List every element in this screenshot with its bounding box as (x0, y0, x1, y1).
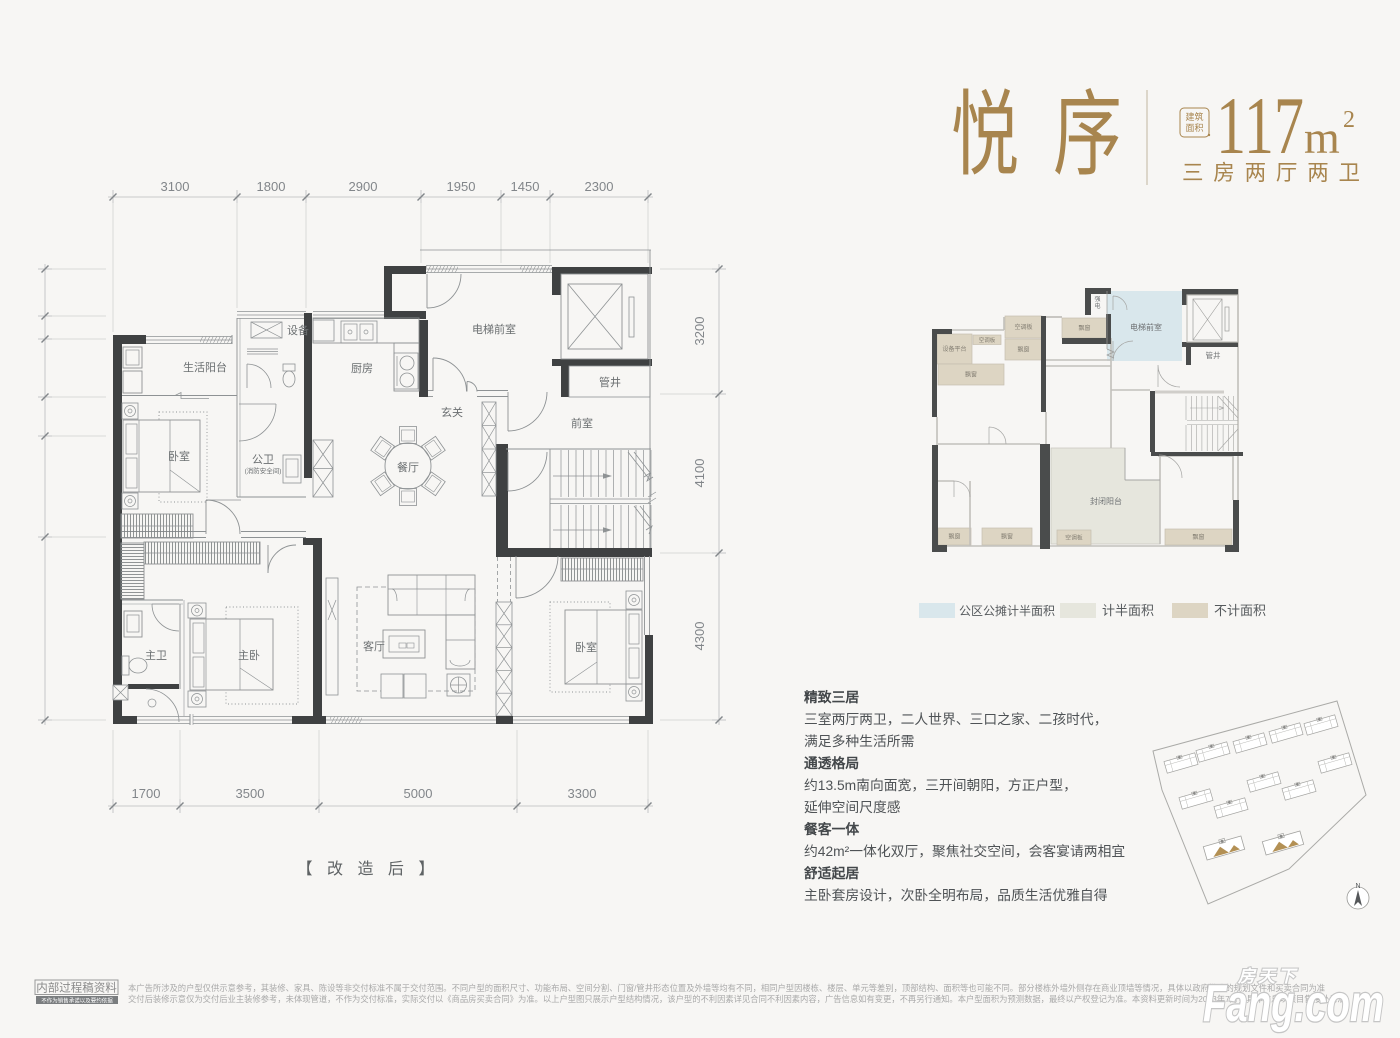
svg-text:4100: 4100 (692, 459, 707, 488)
svg-text:悦: 悦 (951, 85, 1019, 188)
svg-text:3300: 3300 (568, 786, 597, 801)
svg-text:约42m²一体化双厅，聚焦社交空间，会客宴请两相宜: 约42m²一体化双厅，聚焦社交空间，会客宴请两相宜 (804, 843, 1125, 859)
svg-text:飘窗: 飘窗 (1192, 533, 1204, 541)
svg-text:主卫: 主卫 (145, 649, 167, 662)
svg-text:玄关: 玄关 (441, 405, 463, 419)
svg-text:飘窗: 飘窗 (1078, 324, 1090, 332)
svg-text:2900: 2900 (349, 179, 378, 194)
svg-text:客厅: 客厅 (363, 639, 385, 653)
svg-text:封闭阳台: 封闭阳台 (1090, 496, 1122, 506)
svg-text:约13.5m南向面宽，三开间朝阳，方正户型，: 约13.5m南向面宽，三开间朝阳，方正户型， (804, 777, 1077, 793)
svg-text:三房两厅两卫: 三房两厅两卫 (1182, 161, 1370, 185)
svg-text:1950: 1950 (447, 179, 476, 194)
svg-text:精致三居: 精致三居 (804, 689, 859, 705)
svg-text:m: m (1304, 112, 1340, 163)
svg-text:生活阳台: 生活阳台 (183, 360, 227, 374)
svg-text:公卫: 公卫 (252, 454, 274, 466)
svg-text:设备: 设备 (287, 323, 309, 337)
svg-text:【 改 造 后 】: 【 改 造 后 】 (297, 860, 440, 878)
svg-text:空调板: 空调板 (1065, 534, 1083, 542)
svg-text:延伸空间尺度感: 延伸空间尺度感 (804, 799, 901, 815)
svg-text:前室: 前室 (571, 416, 593, 430)
svg-text:3500: 3500 (236, 786, 265, 801)
svg-text:不计面积: 不计面积 (1214, 603, 1266, 618)
svg-text:1800: 1800 (257, 179, 286, 194)
svg-text:餐客一体: 餐客一体 (803, 821, 859, 837)
svg-text:(消防安全间): (消防安全间) (245, 466, 282, 475)
svg-text:通透格局: 通透格局 (804, 755, 859, 771)
svg-text:主卧套房设计，次卧全明布局，品质生活优雅自得: 主卧套房设计，次卧全明布局，品质生活优雅自得 (804, 887, 1108, 903)
svg-text:卧室: 卧室 (168, 449, 190, 463)
svg-text:三室两厅两卫，二人世界、三口之家、二孩时代，: 三室两厅两卫，二人世界、三口之家、二孩时代， (804, 711, 1108, 727)
svg-text:3200: 3200 (692, 317, 707, 346)
svg-text:飘窗: 飘窗 (948, 533, 960, 541)
svg-text:面积: 面积 (1185, 122, 1203, 133)
svg-text:1700: 1700 (132, 786, 161, 801)
svg-text:电梯前室: 电梯前室 (472, 322, 516, 336)
svg-text:公区公摊计半面积: 公区公摊计半面积 (959, 604, 1055, 618)
svg-text:N: N (1355, 883, 1360, 890)
svg-text:1450: 1450 (511, 179, 540, 194)
svg-text:本广告所涉及的户型仅供示意参考，其装修、家具、陈设等非交付标: 本广告所涉及的户型仅供示意参考，其装修、家具、陈设等非交付标准不属于交付范围。不… (128, 983, 1325, 993)
svg-text:2: 2 (1343, 107, 1355, 133)
svg-text:电梯前室: 电梯前室 (1130, 322, 1162, 332)
svg-text:餐厅: 餐厅 (397, 460, 419, 474)
svg-text:空调板: 空调板 (979, 336, 996, 344)
svg-text:设备平台: 设备平台 (942, 345, 966, 353)
svg-text:强: 强 (1094, 296, 1100, 303)
svg-text:管井: 管井 (599, 375, 621, 389)
svg-text:飘窗: 飘窗 (1017, 346, 1029, 354)
svg-text:交付后装修示意仅为交付后业主装修参考，未体现管道，不作为交付: 交付后装修示意仅为交付后业主装修参考，未体现管道，不作为交付标准，实际交付以《商… (128, 994, 1346, 1004)
svg-text:空调板: 空调板 (1014, 323, 1032, 331)
svg-text:电: 电 (1094, 302, 1100, 310)
svg-text:飘窗: 飘窗 (965, 371, 977, 379)
svg-text:计半面积: 计半面积 (1102, 603, 1154, 618)
svg-text:2300: 2300 (585, 179, 614, 194)
svg-text:内部过程稿资料: 内部过程稿资料 (36, 981, 117, 995)
svg-text:舒适起居: 舒适起居 (804, 865, 859, 881)
svg-text:卧室: 卧室 (575, 640, 597, 654)
svg-text:飘窗: 飘窗 (1001, 533, 1013, 541)
svg-text:管井: 管井 (1206, 350, 1222, 360)
svg-text:不作为销售承诺以及要约依据: 不作为销售承诺以及要约依据 (41, 996, 113, 1004)
svg-text:Fang.com: Fang.com (1203, 975, 1384, 1033)
svg-text:满足多种生活所需: 满足多种生活所需 (804, 733, 914, 749)
svg-text:5000: 5000 (404, 786, 433, 801)
svg-text:厨房: 厨房 (351, 362, 373, 375)
svg-text:3100: 3100 (161, 179, 190, 194)
svg-text:序: 序 (1053, 85, 1122, 188)
svg-text:4300: 4300 (692, 622, 707, 651)
svg-text:主卧: 主卧 (238, 649, 260, 662)
svg-text:建筑: 建筑 (1185, 111, 1203, 122)
svg-text:117: 117 (1216, 80, 1304, 171)
